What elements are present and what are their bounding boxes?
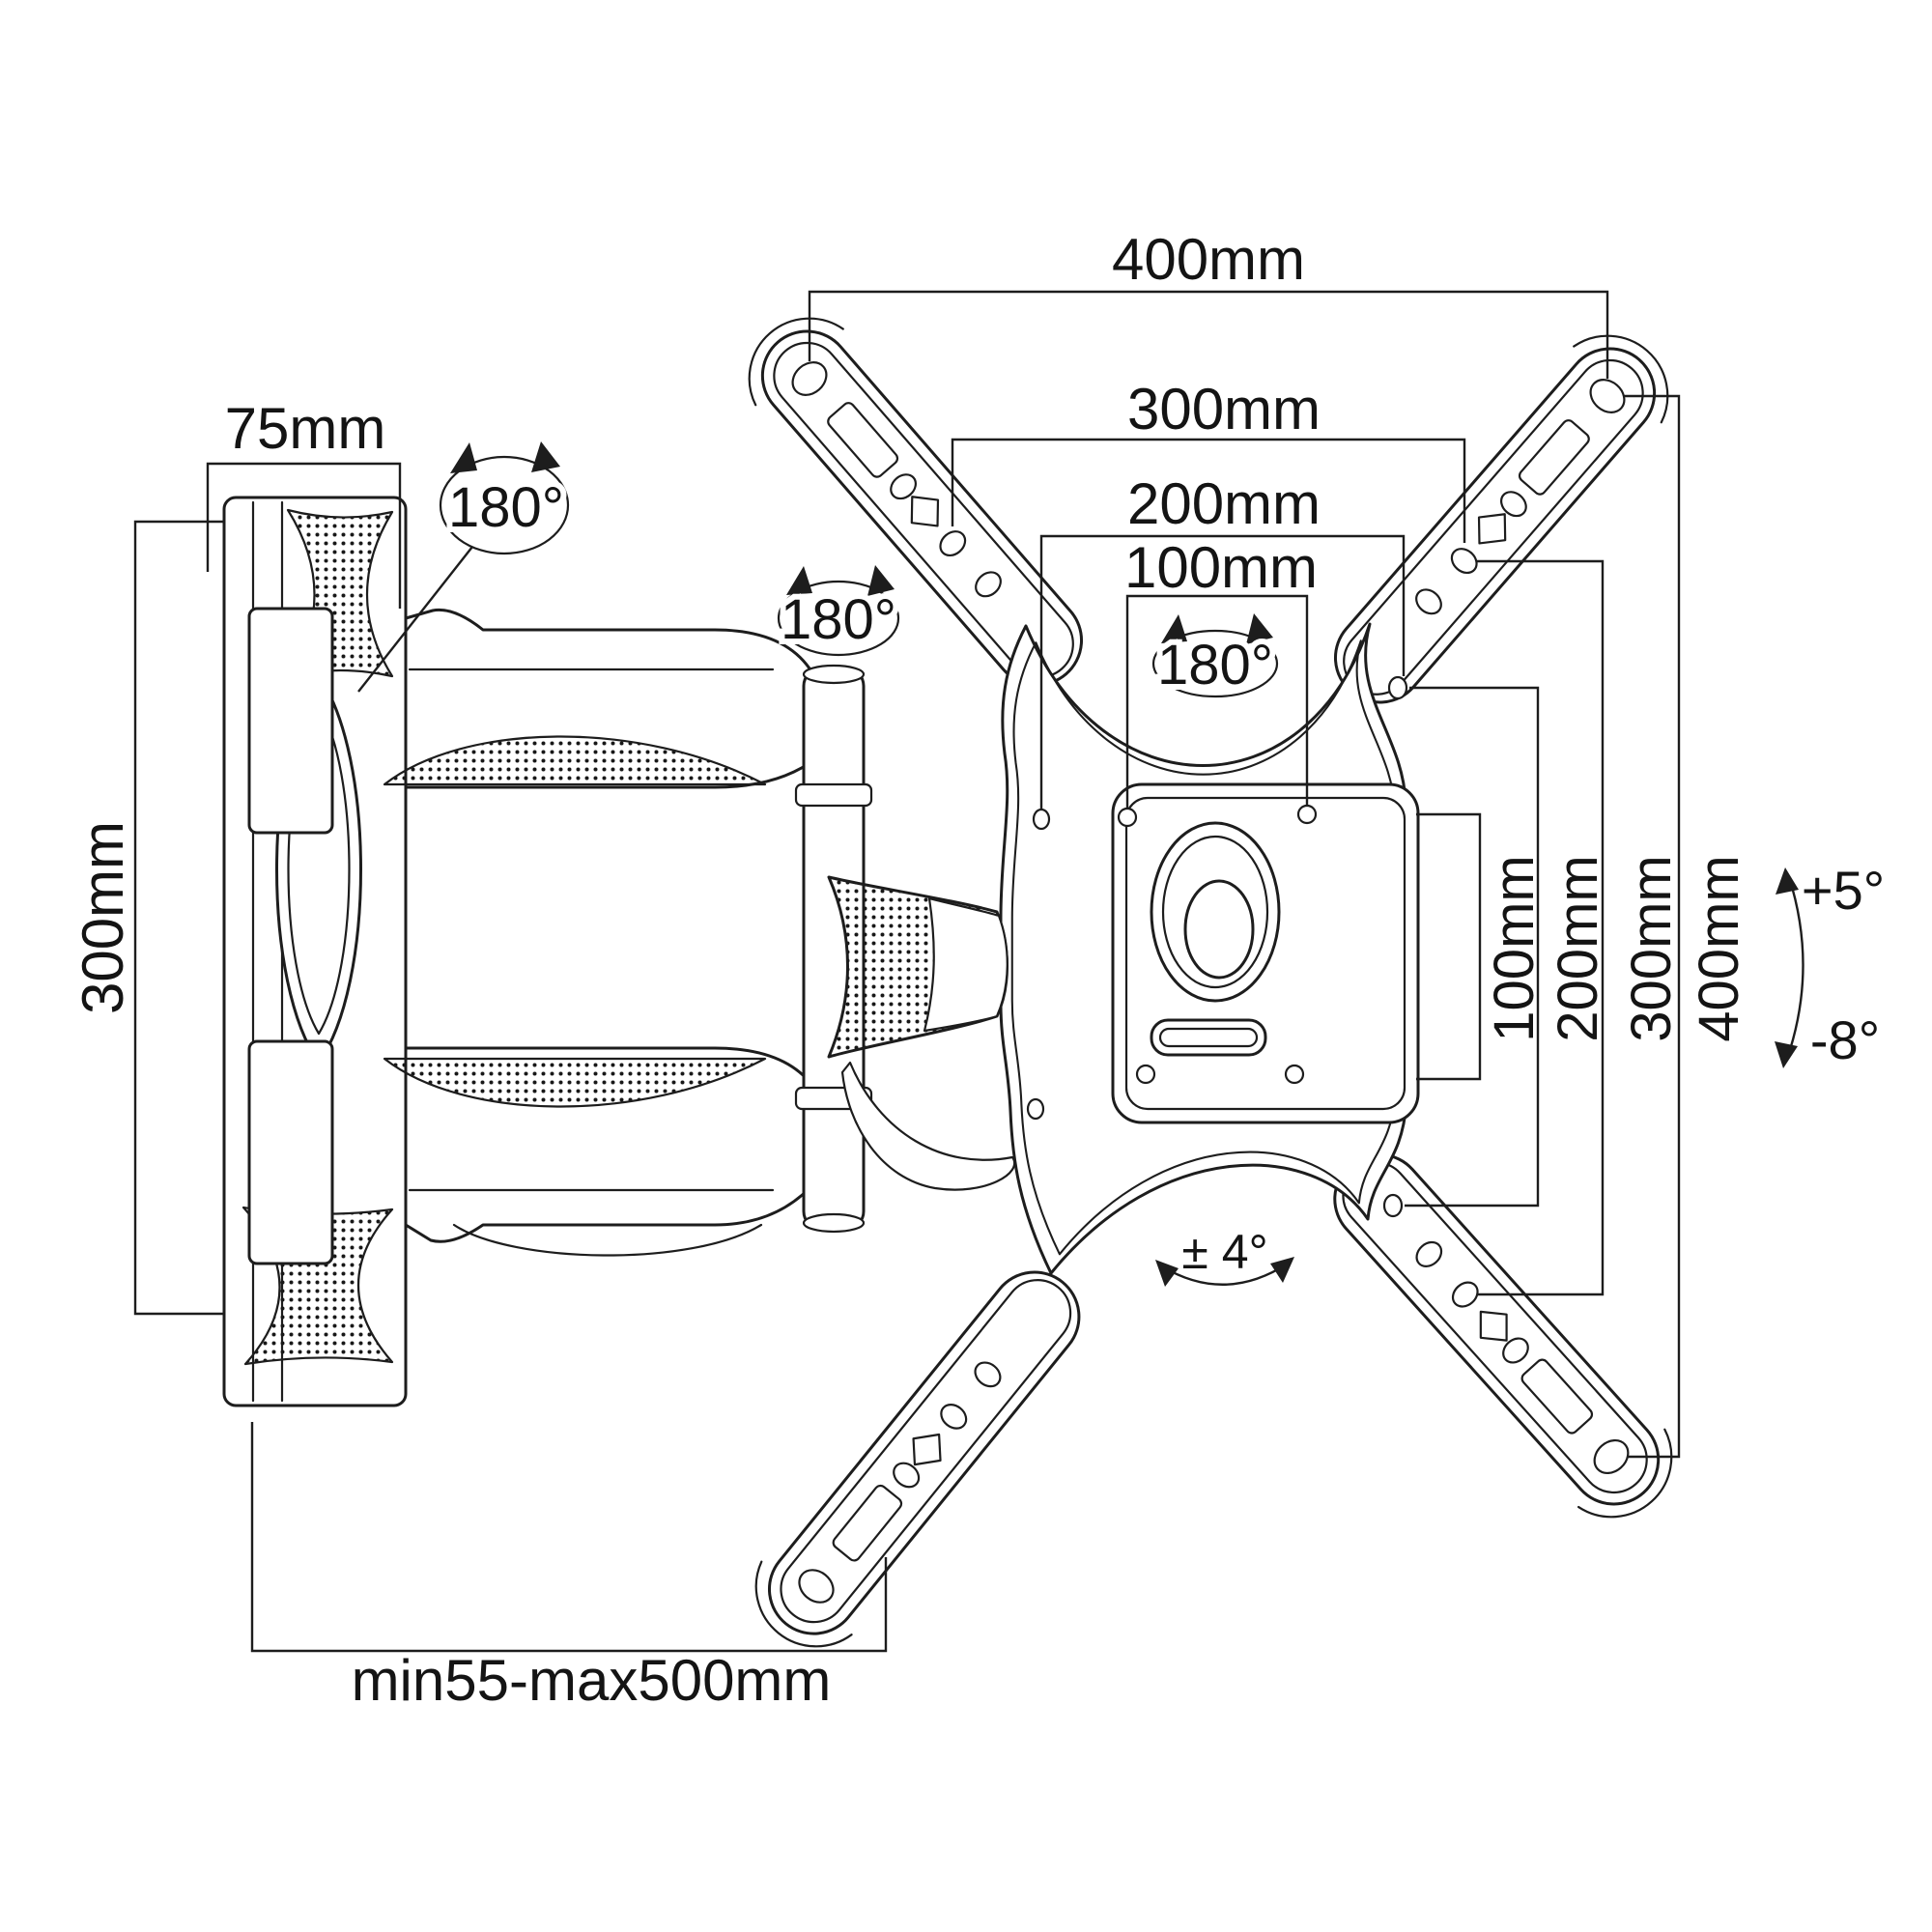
label-right-100mm: 100mm [1483,855,1546,1041]
label-swivel-arm: 180° [781,588,896,651]
adapter-slot [1151,1020,1265,1055]
plate-hole-left-bottom [1028,1099,1043,1119]
adapter-hole-br [1286,1065,1303,1083]
adapter-hole-tr [1298,806,1316,823]
label-top-100mm: 100mm [1124,535,1318,600]
lower-pivot-bracket [249,1041,332,1264]
label-level-angle: ± 4° [1181,1225,1267,1279]
label-right-300mm: 300mm [1620,855,1683,1041]
label-swivel-wall: 180° [448,476,564,539]
adapter-hole-tl [1119,809,1136,826]
label-wall-width: 75mm [225,396,386,461]
wall-mount-technical-drawing: 400mm 300mm 200mm 100mm 75mm 300mm min55… [0,0,1932,1932]
label-tilt-down: -8° [1810,1009,1880,1070]
label-top-300mm: 300mm [1127,377,1321,441]
adapter-hole-bl [1137,1065,1154,1083]
plate-hole-corner-bottom [1384,1195,1402,1216]
upper-pivot-bracket [249,609,332,833]
plate-hole-corner-top [1389,677,1406,698]
keyhole-opening [1185,881,1253,978]
vesa-adapter-plate [1113,784,1418,1122]
socket-clamp [842,1063,1014,1190]
side-view-assembly [224,497,871,1406]
label-right-200mm: 200mm [1547,855,1609,1041]
label-wall-height: 300mm [71,821,135,1014]
label-tilt-up: +5° [1802,860,1885,921]
label-extension: min55-max500mm [352,1648,832,1713]
label-right-400mm: 400mm [1688,855,1750,1041]
lower-arm [384,1048,810,1256]
plate-hole-left-top [1034,810,1049,829]
label-top-400mm: 400mm [1112,227,1305,292]
label-swivel-plate: 180° [1157,634,1273,696]
arm-bottom-left [733,1245,1107,1669]
dim-line-wall-height [135,522,224,1314]
upper-arm [384,610,810,787]
label-top-200mm: 200mm [1127,471,1321,536]
dim-line-top-400 [810,292,1607,379]
dim-line-right-100 [1416,814,1480,1079]
tilt-angle-arc [1775,867,1804,1068]
